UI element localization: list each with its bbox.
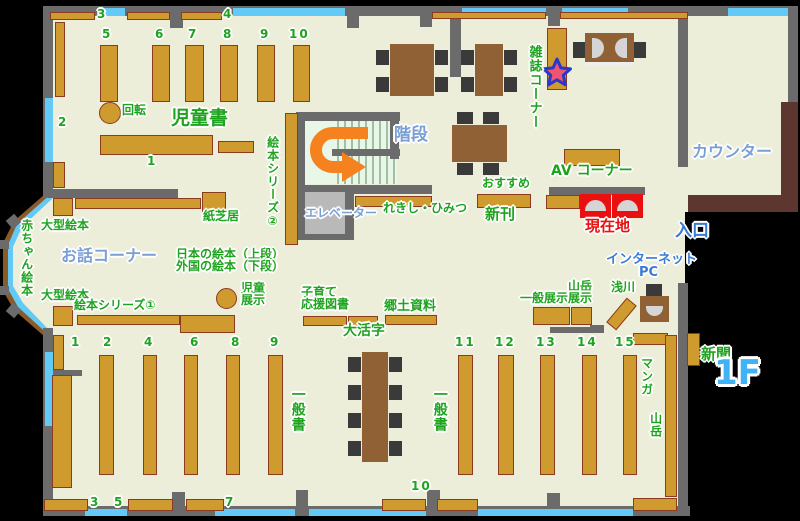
- shelf-children-6: [152, 45, 170, 102]
- rotating-rack: [99, 102, 121, 124]
- shelf-number: 15: [615, 336, 636, 349]
- parenting-books-label2: 応援図書: [301, 298, 349, 311]
- shelf-general-1b: [52, 375, 72, 488]
- internet-pc-label2: PC: [639, 266, 658, 280]
- counter-desk: [688, 195, 798, 212]
- shelf-general-bottom-10a: [382, 499, 426, 511]
- pc-monitor: [646, 284, 662, 296]
- window: [478, 509, 633, 516]
- shelf-general-bottom-5: [128, 499, 173, 511]
- floor-badge: 1F: [714, 356, 761, 392]
- shelf-children-9: [257, 45, 275, 102]
- stair-wall-top: [296, 112, 400, 121]
- shelf-number: 8: [223, 28, 233, 41]
- shelf-number: 7: [188, 28, 198, 41]
- children-display-rack: [216, 288, 237, 309]
- general-display-label: 一般展示: [520, 292, 568, 305]
- chair: [348, 385, 361, 400]
- pillar: [548, 6, 560, 26]
- shelf-number: 14: [577, 336, 598, 349]
- chair: [348, 413, 361, 428]
- foreign-books-label: 外国の絵本（下段）: [176, 260, 284, 273]
- chair: [435, 77, 448, 92]
- window: [45, 98, 53, 162]
- shelf-general-13: [540, 355, 555, 475]
- shelf-ogata-ehon-upper: [53, 198, 73, 216]
- shelf-children-1: [100, 135, 213, 155]
- reading-table: [452, 125, 507, 162]
- window: [215, 509, 295, 516]
- reading-table: [390, 44, 434, 96]
- chair: [461, 50, 474, 65]
- window: [728, 8, 788, 16]
- u-turn-arrow-icon: [306, 124, 370, 182]
- shelf-ehon-series-1a: [77, 315, 180, 325]
- current-location-label: 現在地: [585, 219, 630, 235]
- shelf-general-2: [99, 355, 114, 475]
- shelf-general-11: [458, 355, 473, 475]
- shelf-kyodo-shiryo: [385, 315, 437, 325]
- shelf-corner-bottom: [633, 498, 677, 511]
- stairs-label: 階段: [394, 127, 428, 145]
- shelf-ehon-series-2: [285, 113, 298, 245]
- shelf-children-3a: [50, 12, 95, 20]
- shelf-kamishibai: [75, 198, 201, 209]
- shelf-general-bottom-7: [186, 499, 224, 511]
- general-books-label: 一般書: [290, 387, 305, 432]
- rotating-rack-label: 回転: [122, 104, 146, 117]
- chair: [376, 77, 389, 92]
- baby-books-label: 赤ちゃん絵本: [20, 219, 33, 297]
- wall-stub-display: [550, 327, 602, 333]
- shelf-number: 8: [231, 336, 241, 349]
- shelf-number: 5: [102, 28, 112, 41]
- armchair-base: [585, 62, 634, 66]
- wall-shelf-top: [560, 12, 688, 19]
- children-display-label2: 展示: [241, 294, 265, 307]
- pillar: [296, 490, 308, 516]
- shelf-general-1a: [53, 335, 64, 370]
- shelf-general-8: [226, 355, 240, 475]
- general-books-label2: 一般書: [432, 387, 447, 432]
- wall-right-annex: [788, 6, 798, 102]
- pillar: [420, 6, 432, 27]
- history-secrets-label: れきし・ひみつ: [383, 202, 467, 215]
- recommended-label: おすすめ: [482, 177, 530, 190]
- shelf-general-14: [582, 355, 597, 475]
- local-materials-label: 郷土資料: [384, 300, 436, 314]
- partition-children-area: [45, 189, 178, 198]
- asakawa-label: 浅川: [611, 281, 635, 294]
- shelf-number: 12: [495, 336, 516, 349]
- children-books-label: 児童書: [171, 109, 228, 129]
- av-corner-label: AV コーナー: [551, 164, 633, 179]
- wall-right-wing: [678, 283, 688, 516]
- shelf-number: 3: [90, 496, 100, 509]
- shelf-number: 13: [536, 336, 557, 349]
- shelf-number: 3: [97, 8, 107, 21]
- story-corner-label: お話コーナー: [61, 248, 157, 265]
- shelf-sangaku-tenji: [571, 307, 592, 325]
- shelf-children-7: [185, 45, 204, 102]
- shelf-number: 9: [260, 28, 270, 41]
- shelf-number: 5: [114, 496, 124, 509]
- shelf-number: 7: [225, 496, 235, 509]
- current-location-star-icon: [542, 57, 572, 87]
- shelf-children-3b: [127, 12, 170, 20]
- shelf-general-12: [498, 355, 514, 475]
- shelf-left-small: [53, 162, 65, 188]
- chair: [348, 357, 361, 372]
- shelf-children-1b: [218, 141, 254, 153]
- chair: [483, 163, 499, 175]
- shelf-number: 4: [223, 8, 233, 21]
- shelf-number: 2: [103, 336, 113, 349]
- shelf-general-bottom-10b: [437, 499, 478, 511]
- shelf-ogata-ehon-lower: [53, 306, 73, 326]
- chair: [457, 112, 473, 124]
- chair: [457, 163, 473, 175]
- shelf-children-2: [55, 22, 65, 97]
- shelf-children-5: [100, 45, 118, 102]
- chair: [504, 50, 517, 65]
- armrest: [573, 42, 585, 58]
- counter-room-floor: [685, 12, 788, 212]
- library-floor-map: 児童書 回転 3 4 5 6 7 8 9 10 1 2 絵本シリーズ② 階段 エ…: [0, 0, 800, 521]
- chair: [461, 77, 474, 92]
- shelf-number: 10: [289, 28, 310, 41]
- shelf-general-bottom-3: [44, 499, 88, 511]
- new-books-label: 新刊: [485, 207, 515, 223]
- elevator-wall: [296, 234, 354, 240]
- chair: [389, 413, 402, 428]
- shelf-children-10: [293, 45, 310, 102]
- wall-shelf-top: [432, 12, 546, 19]
- shelf-children-8: [220, 45, 238, 102]
- magazine-corner-label: 雑誌コーナー: [527, 45, 541, 129]
- shelf-ehon-series-1b: [180, 315, 235, 333]
- picture-book-series1-label: 絵本シリーズ①: [74, 299, 156, 312]
- chair: [389, 441, 402, 456]
- shelf-sangaku-wall: [665, 335, 677, 497]
- window: [233, 8, 345, 16]
- shelf-kosodate: [303, 316, 347, 326]
- mountain-books-label: 山岳: [649, 412, 662, 438]
- chair: [435, 50, 448, 65]
- window: [85, 509, 127, 516]
- shelf-number: 2: [58, 116, 68, 129]
- chair: [504, 77, 517, 92]
- shelf-ippan-tenji: [533, 307, 570, 325]
- picture-book-series2-label: 絵本シリーズ②: [266, 136, 279, 229]
- mountain-display-label2: 展示: [568, 292, 592, 305]
- elevator-label: エレベーター: [305, 207, 377, 220]
- chair: [389, 357, 402, 372]
- shelf-children-4: [181, 12, 222, 20]
- manga-label: マンガ: [640, 357, 653, 396]
- shelf-number: 1: [147, 155, 157, 168]
- chair: [376, 50, 389, 65]
- shelf-number: 9: [270, 336, 280, 349]
- pillar: [347, 6, 359, 28]
- chair: [348, 441, 361, 456]
- chair: [389, 385, 402, 400]
- pillar: [172, 492, 185, 516]
- shelf-shinbun: [687, 333, 700, 366]
- shelf-number: 6: [155, 28, 165, 41]
- shelf-number: 10: [411, 480, 432, 493]
- counter-label: カウンター: [692, 144, 772, 161]
- shelf-general-15: [623, 355, 637, 475]
- chair: [483, 112, 499, 124]
- shelf-number: 4: [144, 336, 154, 349]
- shelf-number: 11: [455, 336, 476, 349]
- counter-desk: [781, 102, 798, 195]
- large-print-label: 大活字: [343, 324, 385, 339]
- wall-right-main: [678, 6, 688, 167]
- armrest: [634, 42, 646, 58]
- entrance-label: 入口: [675, 223, 709, 241]
- shelf-general-9: [268, 355, 283, 475]
- reading-table: [475, 44, 503, 96]
- bay-corner-block: [0, 286, 9, 295]
- long-reading-table: [362, 352, 388, 462]
- shelf-number: 6: [190, 336, 200, 349]
- shelf-manga-top: [633, 333, 668, 345]
- shelf-general-4: [143, 355, 157, 475]
- bay-corner-block: [0, 240, 9, 249]
- gate-side-box: [546, 195, 580, 209]
- big-picture-books-label: 大型絵本: [41, 219, 89, 232]
- shelf-number: 1: [71, 336, 81, 349]
- kamishibai-label: 紙芝居: [203, 210, 239, 223]
- shelf-general-6: [184, 355, 198, 475]
